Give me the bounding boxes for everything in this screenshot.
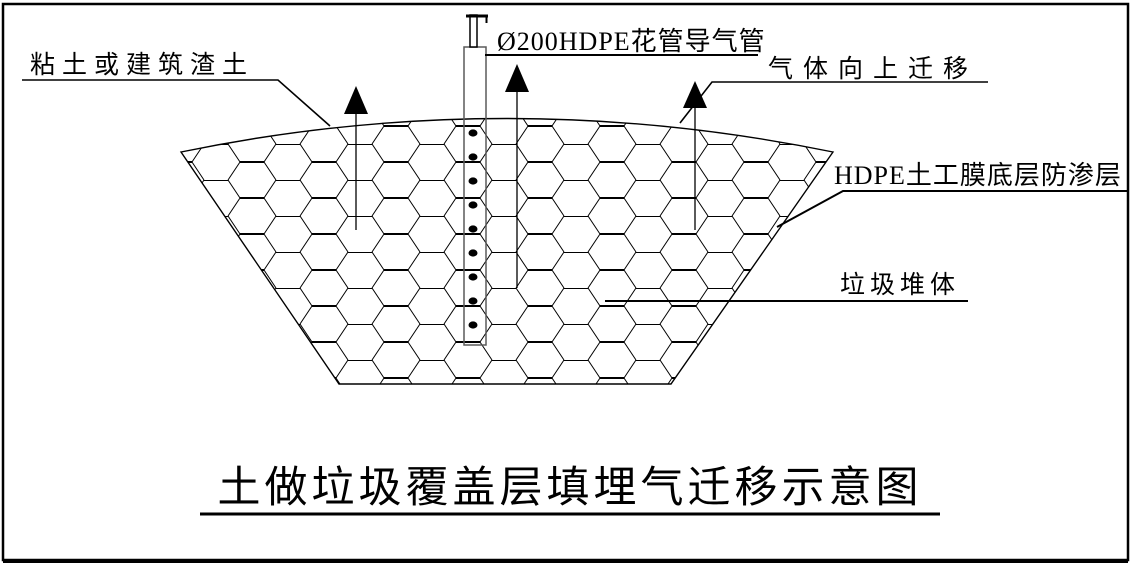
pipe-vent-riser [470, 15, 477, 47]
pipe-perforations [469, 129, 478, 328]
leader-gas-upward [680, 82, 988, 123]
label-waste-body: 垃圾堆体 [840, 271, 960, 299]
label-gas-upward: 气体向上迁移 [768, 55, 978, 83]
leader-hdpe-liner [777, 191, 1127, 227]
drawing-sheet: 粘土或建筑渣土 Ø200HDPE花管导气管 气体向上迁移 HDPE土工膜底层防渗… [0, 0, 1137, 570]
label-hdpe-liner: HDPE土工膜底层防渗层 [834, 161, 1122, 190]
label-gas-pipe: Ø200HDPE花管导气管 [497, 27, 766, 56]
waste-pile-shape [181, 119, 833, 385]
leader-cover-soil [22, 80, 330, 126]
landfill-gas-diagram: 粘土或建筑渣土 Ø200HDPE花管导气管 气体向上迁移 HDPE土工膜底层防渗… [0, 0, 1137, 570]
label-cover-soil: 粘土或建筑渣土 [30, 51, 254, 79]
figure-title: 土做垃圾覆盖层填埋气迁移示意图 [218, 464, 923, 512]
